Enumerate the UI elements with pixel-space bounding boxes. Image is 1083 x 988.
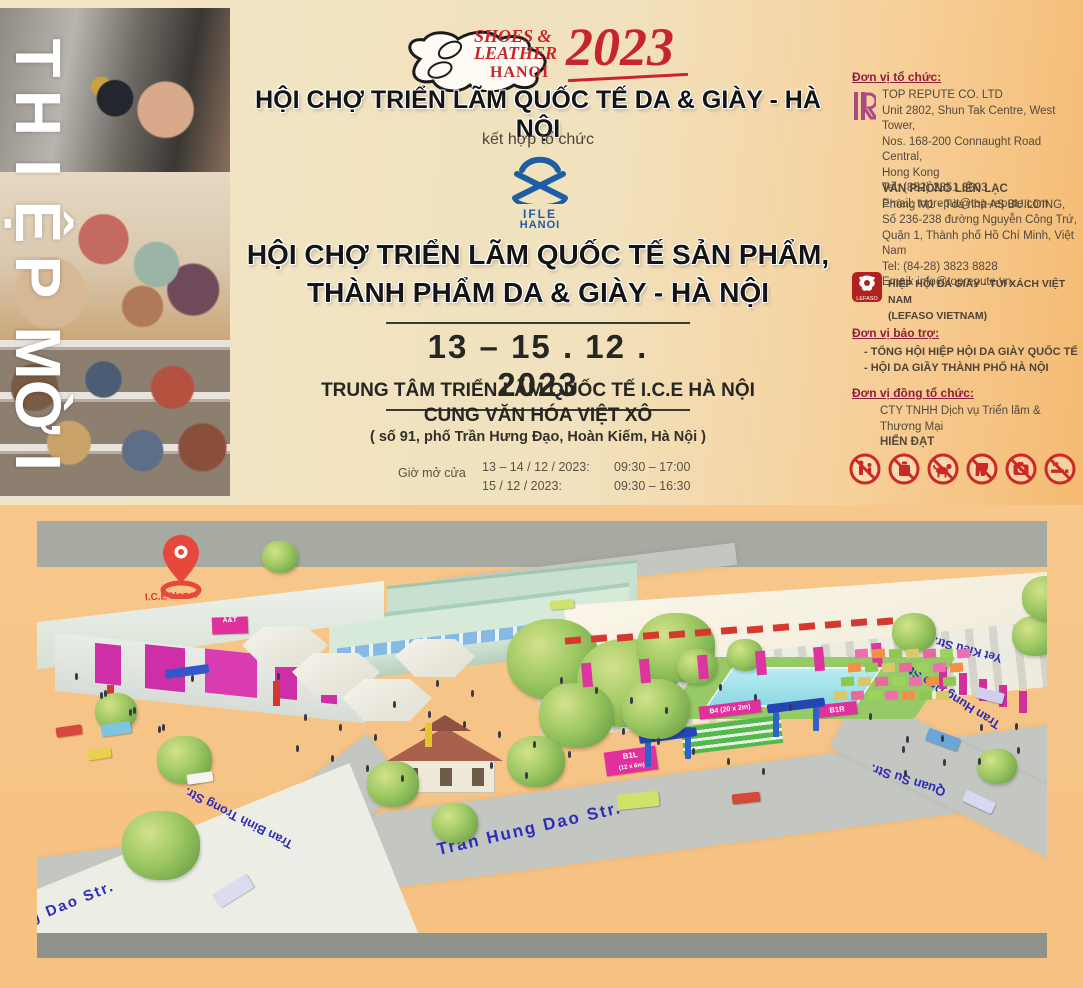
person — [436, 680, 439, 687]
association-name: HIỆP HỘI DA GIẦY - TÚI XÁCH VIỆT NAM (LE… — [888, 276, 1083, 324]
no-pets-icon — [926, 452, 960, 486]
shoes-leather-logo: SHOES &LEATHER HANOI 2023 — [398, 20, 698, 96]
flag — [889, 649, 903, 659]
vehicle — [86, 747, 111, 760]
person — [869, 713, 872, 720]
photo-sewing-machine — [0, 8, 230, 172]
prohibition-icons — [848, 452, 1078, 486]
coorganizer-heading: Đơn vị đồng tổ chức: — [852, 386, 974, 400]
kakemono-banner — [273, 681, 280, 706]
coorganizer-name: CTY TNHH Dịch vụ Triển lãm & Thương Mại … — [880, 404, 1080, 451]
flag — [940, 649, 954, 659]
person — [191, 675, 194, 682]
person — [657, 738, 660, 745]
person — [158, 726, 161, 733]
event-title-2: HỘI CHỢ TRIỂN LÃM QUỐC TẾ SẢN PHẨM, THÀN… — [238, 236, 838, 312]
invitation-page: THIỆPMỜI SHOES &LEATHER HANOI 2023 HỘI C… — [0, 0, 1083, 988]
venue-address: ( số 91, phố Trần Hưng Đạo, Hoàn Kiếm, H… — [238, 429, 838, 445]
liaison-office: VĂN PHÒNG LIÊN LẠC Phòng M1 - Tòa nhà AS… — [882, 182, 1082, 291]
flag — [851, 691, 865, 701]
person — [339, 724, 342, 731]
column-banner — [813, 647, 825, 672]
flag — [950, 663, 964, 673]
person — [595, 687, 598, 694]
pavilion-roof — [387, 727, 503, 761]
roof-banner-dash — [617, 633, 634, 641]
person — [665, 707, 668, 714]
sponsor-heading: Đơn vị bảo trợ: — [852, 326, 939, 340]
person — [393, 701, 396, 708]
tree — [367, 761, 419, 807]
flag — [919, 691, 933, 701]
facade-panel — [205, 648, 257, 697]
person — [525, 772, 528, 779]
person — [331, 755, 334, 762]
roof-banner-dash — [825, 620, 842, 628]
column-banner-right — [1019, 691, 1027, 713]
svg-text:LEFASO: LEFASO — [856, 296, 878, 302]
flag — [848, 663, 862, 673]
person — [980, 724, 983, 731]
flag — [875, 677, 889, 687]
person — [533, 741, 536, 748]
person — [560, 677, 563, 684]
person — [789, 704, 792, 711]
flag — [902, 691, 916, 701]
kakemono-banner — [425, 723, 432, 747]
person — [762, 768, 765, 775]
person — [498, 731, 501, 738]
person — [162, 724, 165, 731]
person — [104, 690, 107, 697]
tree — [122, 811, 200, 880]
roof-banner-dash — [565, 636, 582, 644]
column-banner — [639, 659, 651, 684]
flag — [923, 649, 937, 659]
pavilion-window — [440, 768, 452, 786]
flag — [892, 677, 906, 687]
person — [129, 709, 132, 716]
column-banner — [755, 651, 767, 676]
person — [568, 751, 571, 758]
vehicle — [186, 771, 213, 785]
flag — [865, 663, 879, 673]
column-banner — [581, 663, 593, 688]
no-shorts-icon — [965, 452, 999, 486]
roof-banner-dash — [877, 617, 894, 625]
ifle-knot-icon — [507, 156, 573, 204]
photo-shoe-shelves — [0, 340, 230, 498]
logo-hanoi: HANOI — [490, 64, 549, 82]
column-banner-right — [959, 673, 967, 695]
flag — [855, 649, 869, 659]
column-banner — [697, 655, 709, 680]
map-foreground-band — [37, 933, 1047, 958]
flag — [957, 649, 971, 659]
tree — [622, 679, 690, 739]
person — [366, 765, 369, 772]
person — [1017, 747, 1020, 754]
banner-at: A&T — [212, 616, 249, 634]
flag — [885, 691, 899, 701]
person — [401, 775, 404, 782]
flag — [899, 663, 913, 673]
person — [277, 673, 280, 680]
person — [719, 684, 722, 691]
photo-leather-rolls — [0, 172, 230, 340]
flag — [943, 677, 957, 687]
flag — [933, 663, 947, 673]
flag — [909, 677, 923, 687]
person — [75, 673, 78, 680]
person — [692, 748, 695, 755]
opening-hours-times: 09:30 – 17:00 09:30 – 16:30 — [614, 458, 714, 496]
no-camera-icon — [1004, 452, 1038, 486]
tree — [432, 803, 478, 843]
flag — [872, 649, 886, 659]
organizer-heading: Đơn vị tổ chức: — [852, 70, 941, 84]
flag — [906, 649, 920, 659]
person — [374, 734, 377, 741]
person — [904, 770, 907, 777]
sponsor-list: - TỔNG HỘI HIỆP HỘI DA GIÀY QUỐC TẾ - HỘ… — [864, 344, 1079, 376]
roof-banner-dash — [799, 622, 816, 630]
person — [622, 728, 625, 735]
ifle-city: HANOI — [498, 220, 582, 231]
flag — [936, 691, 950, 701]
no-smoking-icon — [1043, 452, 1077, 486]
person — [100, 692, 103, 699]
facade-panel — [95, 643, 121, 686]
no-luggage-icon — [887, 452, 921, 486]
vehicle — [55, 724, 82, 738]
logo-text: SHOES &LEATHER — [474, 28, 557, 62]
venue-name-2: CUNG VĂN HÓA VIỆT XÔ — [238, 405, 838, 427]
person — [902, 746, 905, 753]
top-repute-logo — [852, 90, 876, 122]
person — [304, 714, 307, 721]
no-children-icon — [848, 452, 882, 486]
roof-banner-dash — [695, 628, 712, 636]
ifle-logo: IFLE HANOI — [498, 156, 582, 234]
tree — [892, 613, 936, 652]
person — [463, 721, 466, 728]
roof-banner-dash — [747, 625, 764, 633]
flag — [858, 677, 872, 687]
logo-year: 2023 — [566, 16, 674, 78]
person — [471, 690, 474, 697]
person — [490, 762, 493, 769]
person — [754, 694, 757, 701]
flag — [882, 663, 896, 673]
opening-hours: Giờ mở cửa 13 – 14 / 12 / 2023: 15 / 12 … — [398, 458, 716, 496]
venue-name: TRUNG TÂM TRIỂN LÃM QUỐC TẾ I.C.E HÀ NỘI — [238, 380, 838, 402]
person — [906, 736, 909, 743]
invitation-card: THIỆPMỜI SHOES &LEATHER HANOI 2023 HỘI C… — [0, 0, 1083, 505]
venue-map: I.C.E Hanoi A&T A1-1 (10 x 40m) — [37, 521, 1047, 958]
vehicle — [100, 721, 131, 737]
person — [943, 759, 946, 766]
co-organized-note: kết hợp tổ chức — [238, 131, 838, 149]
pavilion-window — [472, 768, 484, 786]
lefaso-logo: LEFASO — [852, 272, 882, 306]
location-pin-icon — [157, 533, 205, 599]
flag — [841, 677, 855, 687]
person — [133, 707, 136, 714]
person — [978, 758, 981, 765]
opening-hours-label: Giờ mở cửa — [398, 458, 482, 496]
opening-hours-dates: 13 – 14 / 12 / 2023: 15 / 12 / 2023: — [482, 458, 614, 496]
person — [941, 735, 944, 742]
flag — [926, 677, 940, 687]
person — [727, 758, 730, 765]
person — [630, 697, 633, 704]
person — [428, 711, 431, 718]
tree — [1012, 616, 1047, 656]
tree — [977, 749, 1017, 784]
tree — [507, 736, 565, 787]
roof-banner-dash — [669, 630, 686, 638]
person — [1015, 723, 1018, 730]
flag — [834, 691, 848, 701]
flag — [868, 691, 882, 701]
tree — [262, 541, 298, 573]
flag — [916, 663, 930, 673]
person — [296, 745, 299, 752]
gate-blue-1 — [773, 699, 819, 737]
